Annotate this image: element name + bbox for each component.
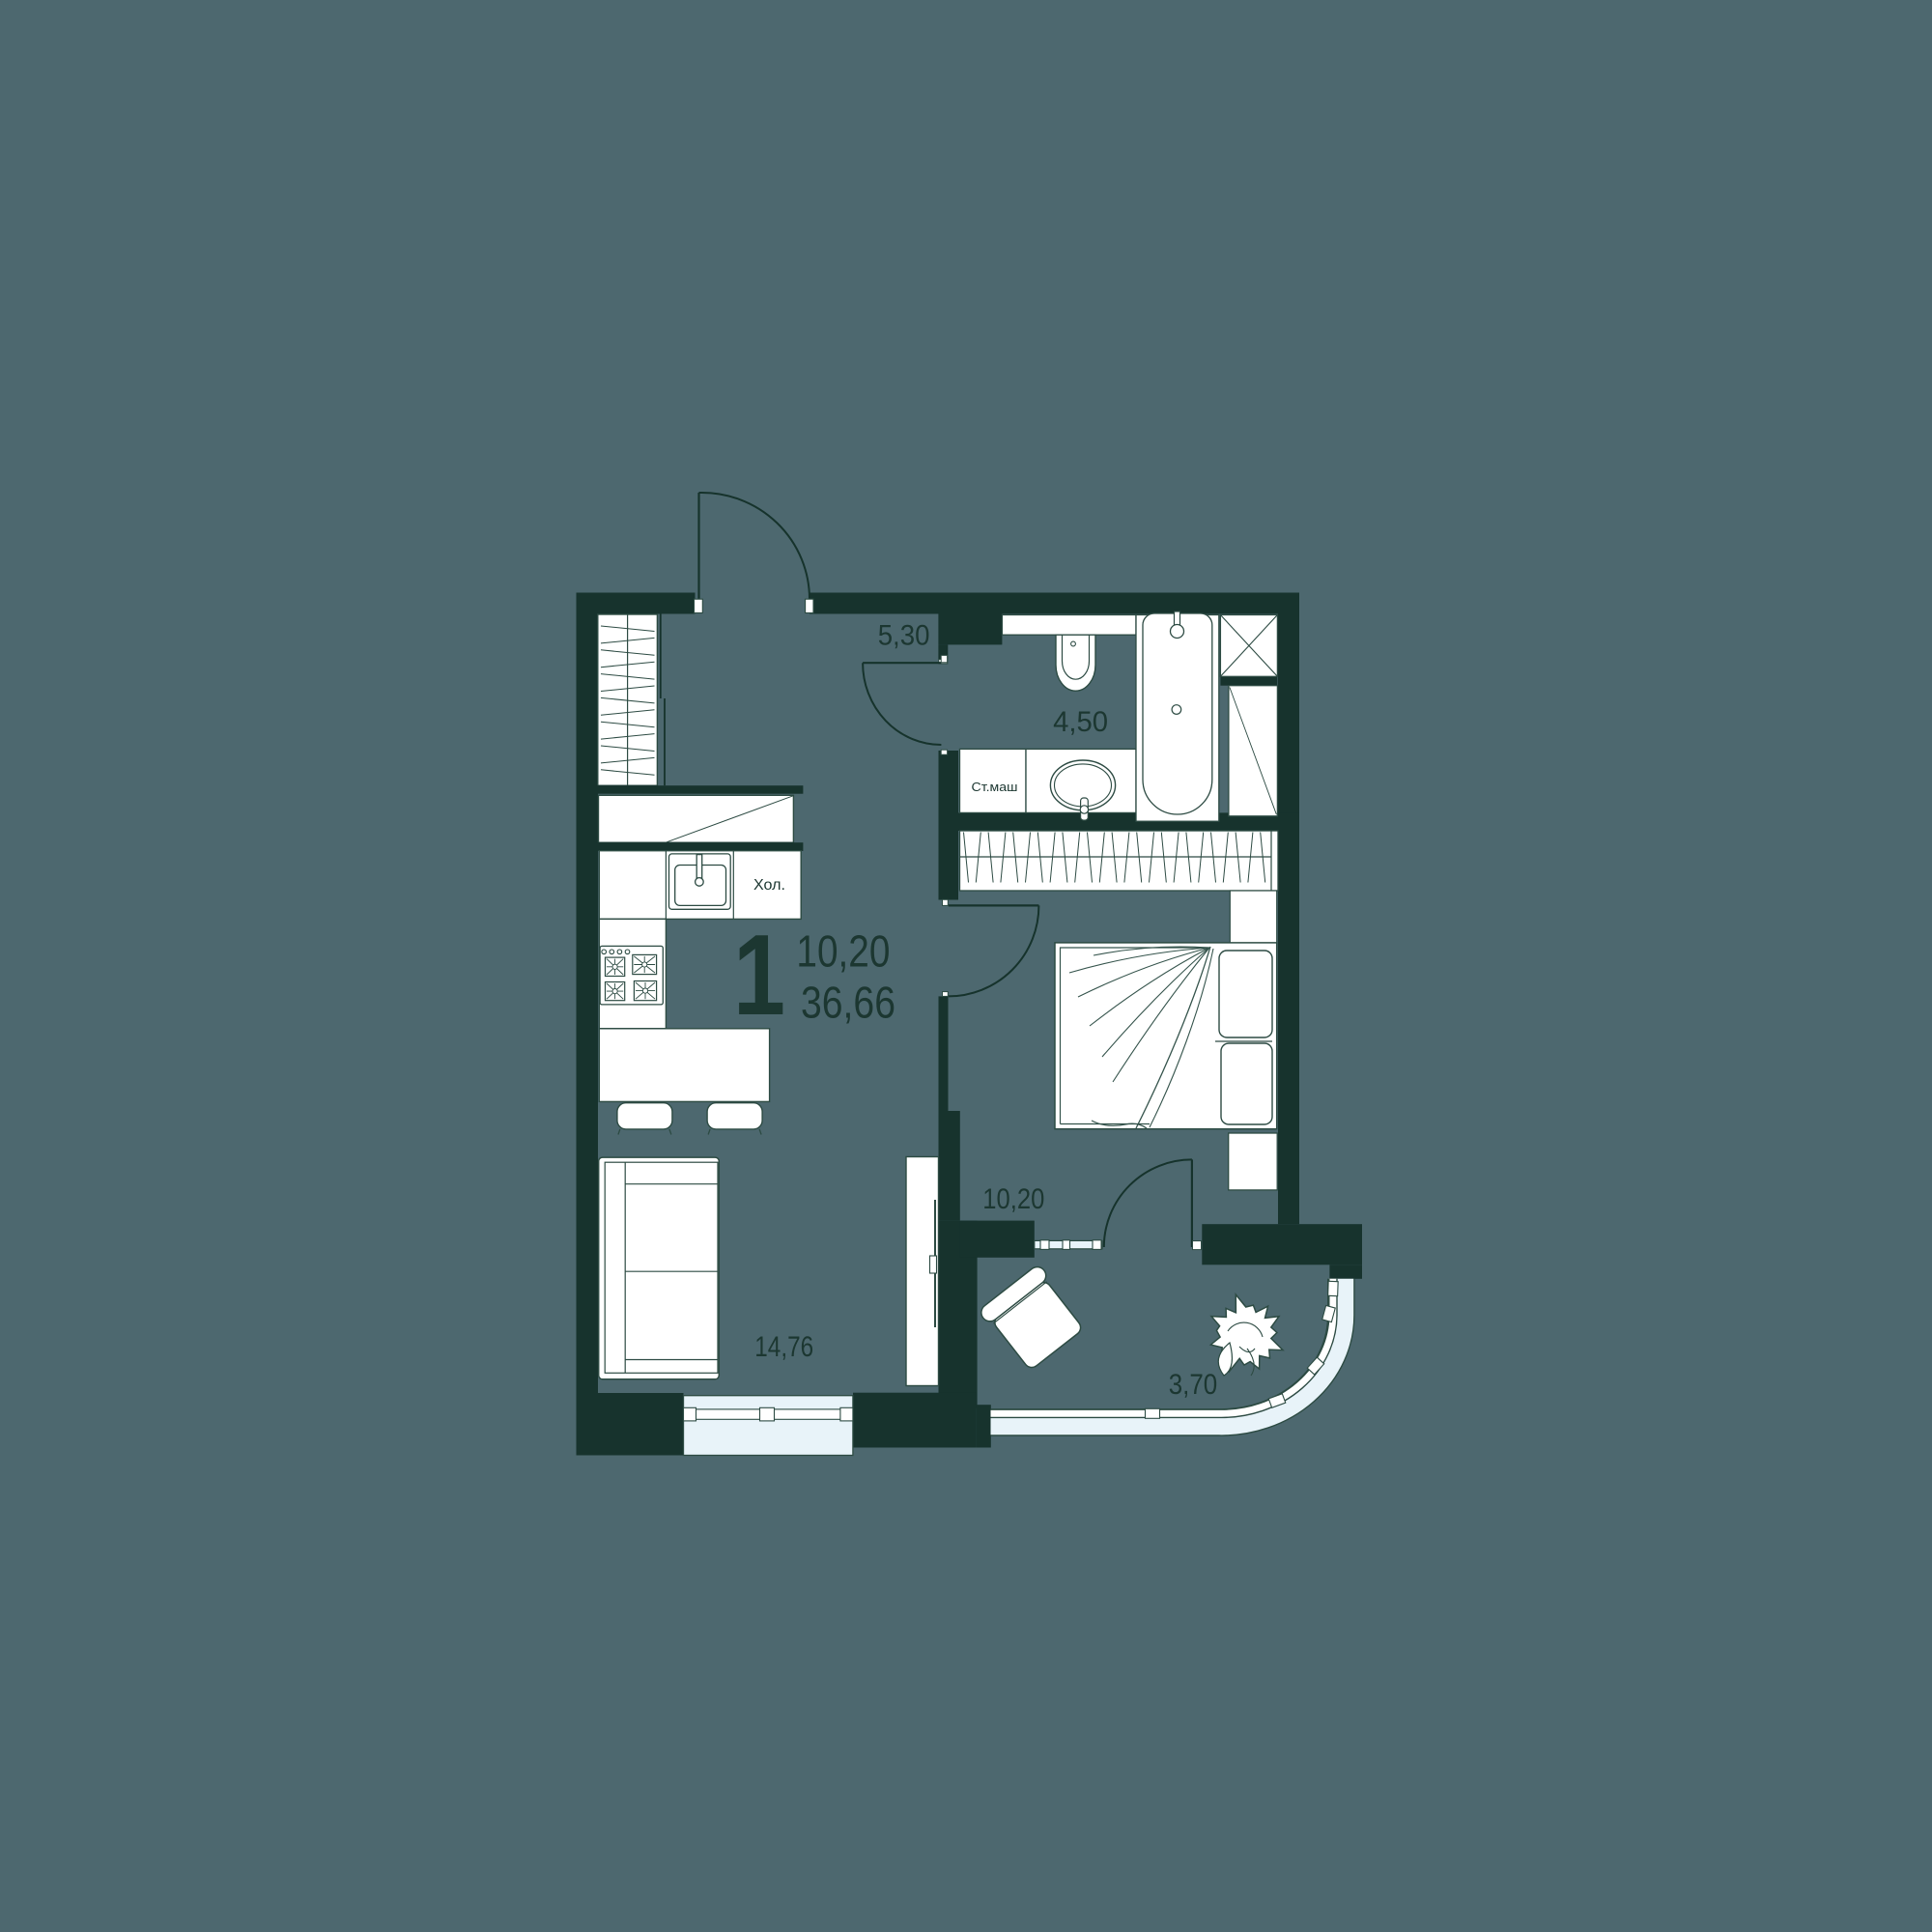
svg-text:Ст.маш: Ст.маш — [972, 781, 1018, 794]
svg-text:1: 1 — [733, 911, 785, 1039]
svg-text:10,20: 10,20 — [982, 1183, 1044, 1215]
svg-text:36,66: 36,66 — [801, 978, 895, 1028]
svg-text:4,50: 4,50 — [1053, 706, 1108, 738]
svg-text:3,70: 3,70 — [1169, 1369, 1218, 1401]
svg-text:5,30: 5,30 — [878, 620, 930, 652]
svg-text:14,76: 14,76 — [754, 1331, 813, 1363]
svg-text:10,20: 10,20 — [796, 926, 890, 977]
svg-text:Хол.: Хол. — [753, 877, 785, 894]
